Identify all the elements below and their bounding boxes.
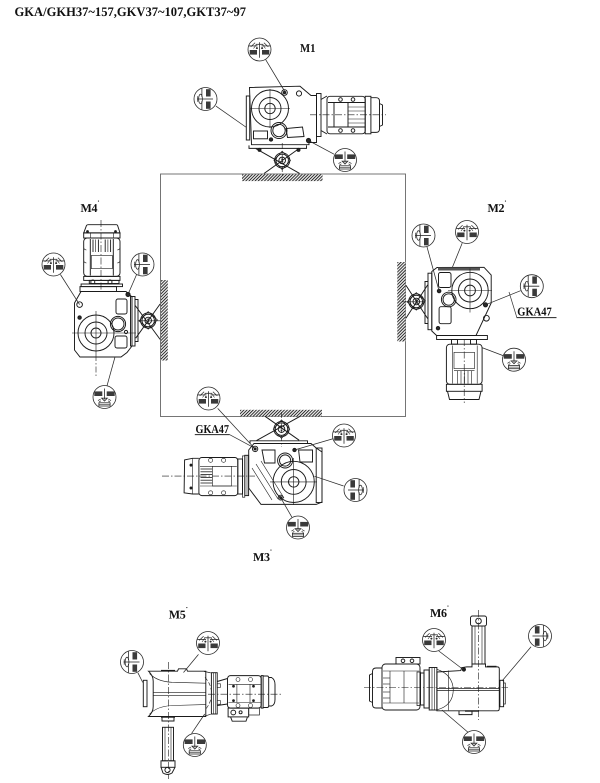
svg-text:GKA47: GKA47 (196, 422, 230, 436)
svg-text:M6˙: M6˙ (430, 604, 449, 620)
svg-text:GKA47: GKA47 (517, 305, 552, 319)
svg-text:M4˙: M4˙ (81, 199, 100, 215)
svg-text:M3˙: M3˙ (253, 548, 272, 564)
svg-text:GKA/GKH37~157,GKV37~107,GKT37~: GKA/GKH37~157,GKV37~107,GKT37~97 (15, 4, 247, 19)
svg-text:M5˙: M5˙ (169, 606, 188, 622)
svg-text:M1: M1 (300, 41, 316, 55)
svg-text:M2˙: M2˙ (488, 199, 507, 215)
